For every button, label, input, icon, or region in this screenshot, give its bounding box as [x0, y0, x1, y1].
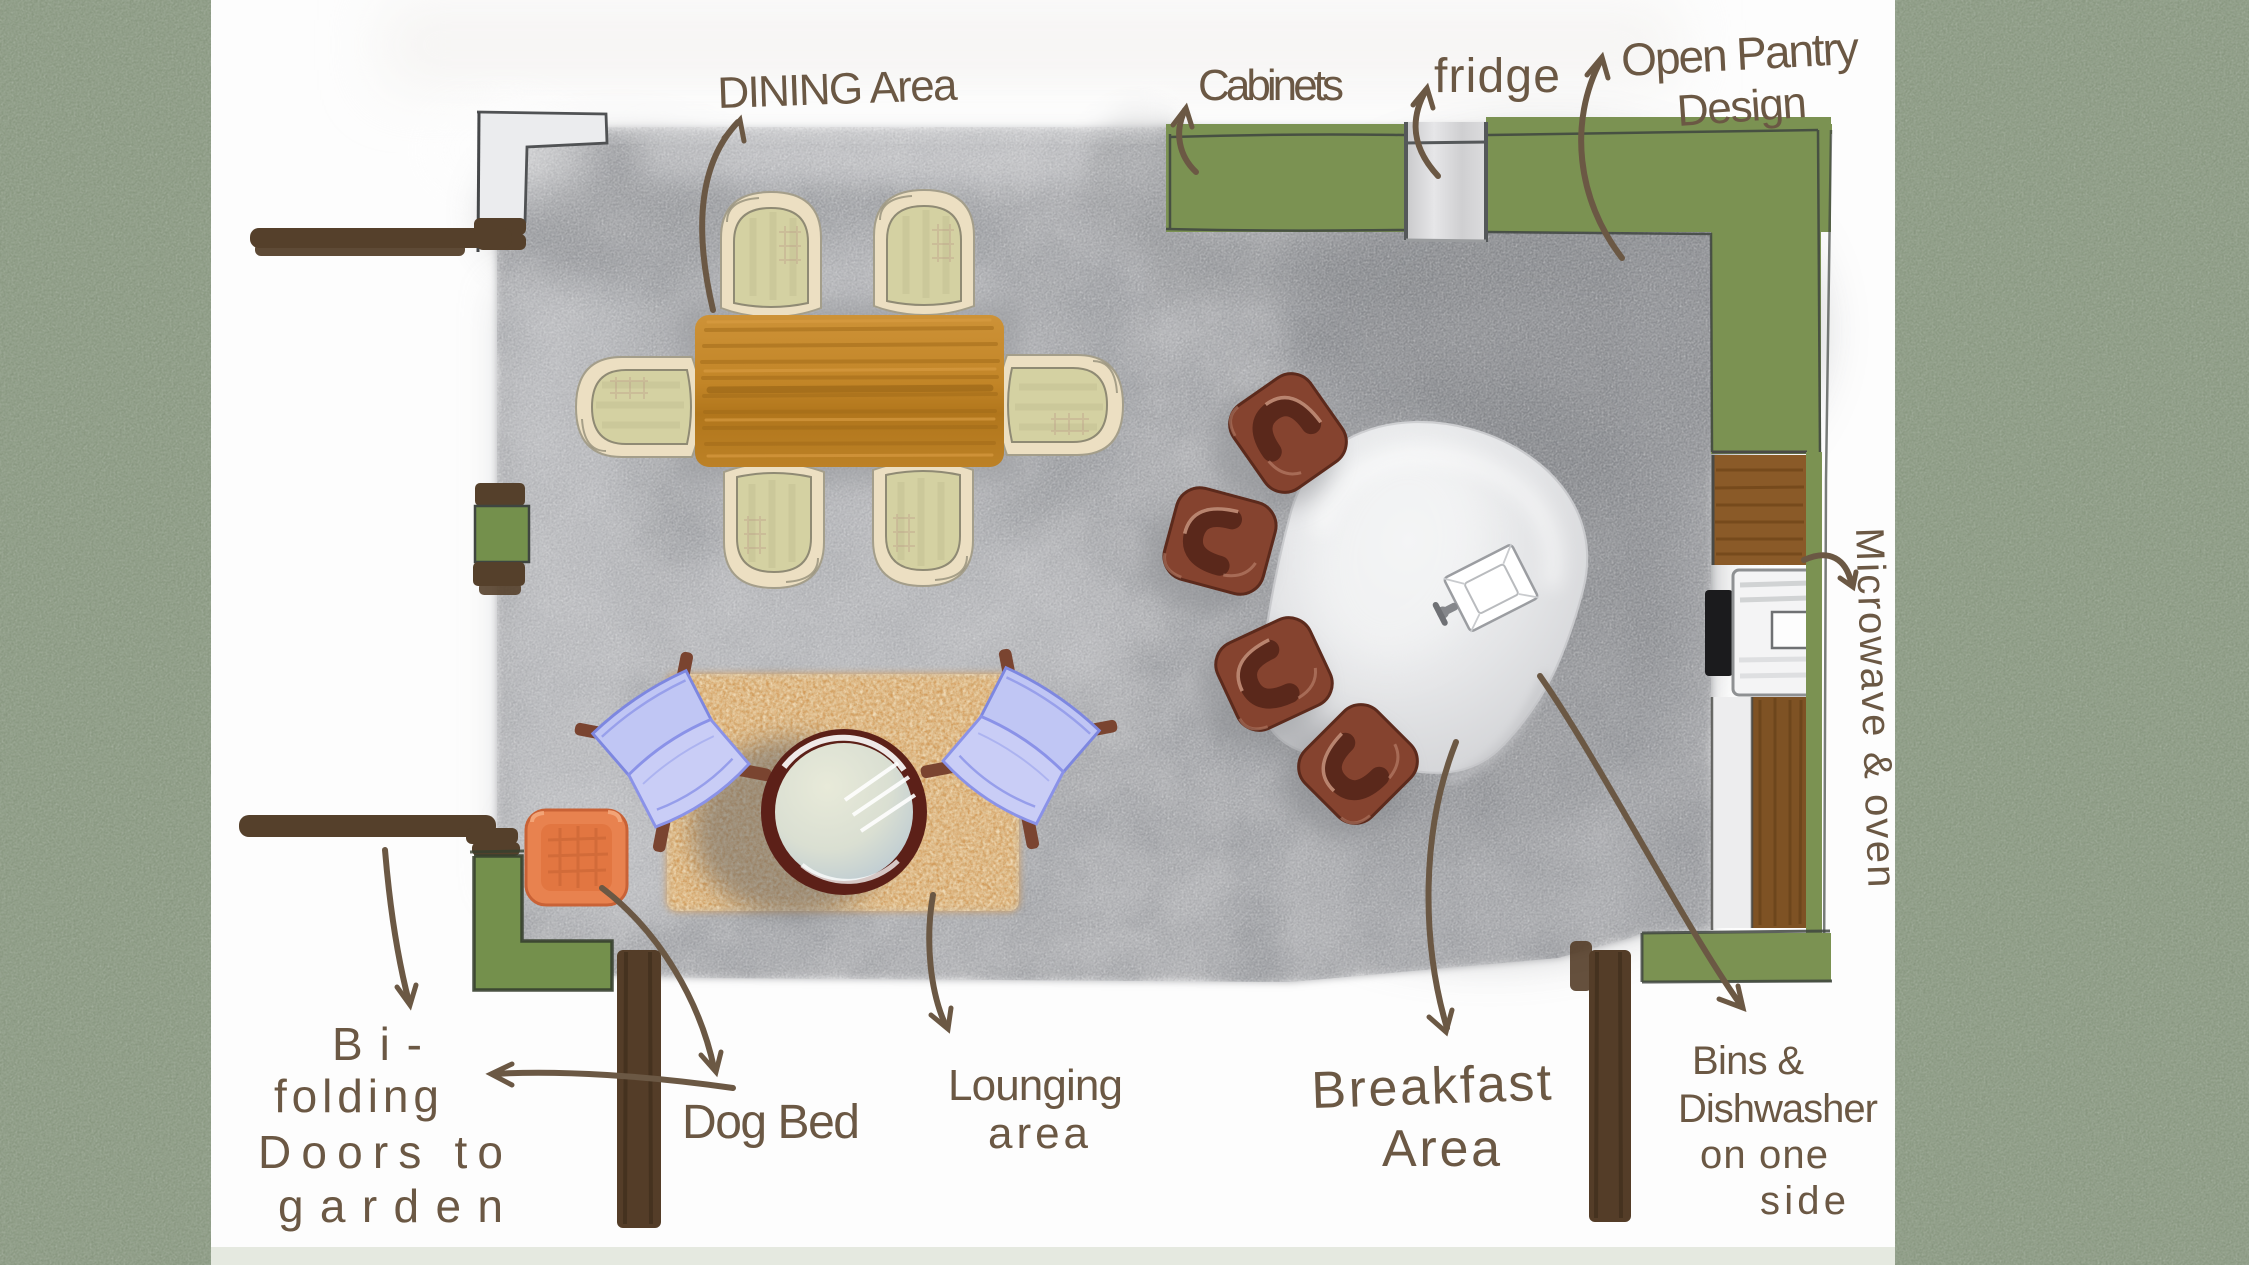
svg-text:Area: Area: [1382, 1120, 1500, 1178]
svg-text:DINING Area: DINING Area: [717, 61, 959, 118]
svg-text:Cabinets: Cabinets: [1198, 61, 1344, 110]
svg-text:side: side: [1760, 1179, 1846, 1223]
svg-text:Dishwasher: Dishwasher: [1678, 1087, 1878, 1131]
svg-text:on one: on one: [1700, 1133, 1828, 1177]
svg-text:folding: folding: [274, 1070, 439, 1122]
svg-text:Lounging: Lounging: [948, 1061, 1123, 1110]
svg-text:area: area: [988, 1109, 1089, 1158]
svg-text:fridge: fridge: [1434, 50, 1560, 103]
svg-text:Design: Design: [1675, 78, 1808, 136]
svg-text:Dog Bed: Dog Bed: [682, 1096, 860, 1149]
svg-text:Bins &: Bins &: [1692, 1039, 1804, 1083]
